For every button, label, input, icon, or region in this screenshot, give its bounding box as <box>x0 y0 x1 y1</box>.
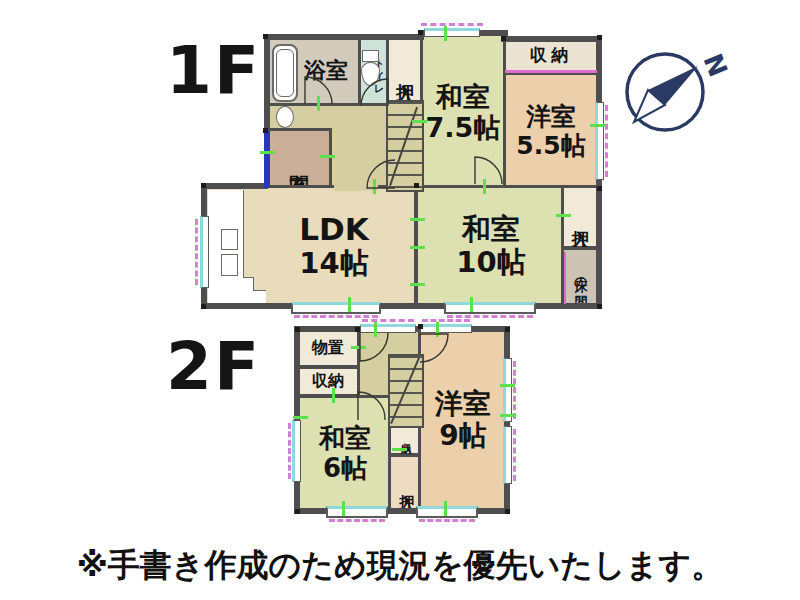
window-pink-dash <box>288 423 291 479</box>
room-label-genkan: 玄関 <box>288 159 310 161</box>
tick-mark <box>293 416 308 419</box>
room-label-closet-right: 押入 <box>570 216 590 218</box>
tick-mark <box>500 384 515 387</box>
tick-mark <box>392 448 407 451</box>
corner-dot <box>414 183 419 188</box>
room-label-youshitsu-55: 洋室 5.5帖 <box>516 103 585 161</box>
window <box>200 216 209 288</box>
room-label-storage-2f: 収納 <box>312 372 344 390</box>
room-2f-washitsu-6: 和室 6帖 <box>296 395 394 512</box>
corner-dot <box>295 509 300 514</box>
room-label-storage-top: 収納 <box>530 46 572 66</box>
tick-mark <box>444 501 447 516</box>
room-1f-storage-top: 収納 <box>503 38 599 74</box>
kitchen-counter-icon <box>221 229 238 250</box>
window <box>420 324 472 333</box>
corner-dot <box>505 327 510 332</box>
kitchen-line <box>243 190 244 278</box>
tick-mark <box>590 124 605 127</box>
tick-mark <box>410 218 425 221</box>
bay-window <box>326 506 388 518</box>
room-2f-storage: 収納 <box>296 366 360 397</box>
room-label-monooki: 物置 <box>312 339 344 357</box>
doorway-opening <box>334 184 378 191</box>
compass-needle-dark <box>648 66 698 105</box>
sink-icon <box>276 106 294 128</box>
window <box>595 102 604 180</box>
window <box>424 28 480 37</box>
kitchen-line <box>253 277 254 290</box>
tick-mark <box>410 283 425 286</box>
sliding-door-line <box>505 70 597 73</box>
window-pink-dash <box>447 315 533 318</box>
room-label-tokonoma: 床の間 <box>573 268 588 286</box>
window-pink-dash <box>513 361 516 419</box>
room-1f-youshitsu-55: 洋室 5.5帖 <box>503 72 599 192</box>
floor1-label: 1F <box>166 38 261 104</box>
tick-mark <box>556 214 571 217</box>
window-pink-dash <box>513 429 516 481</box>
corner-dot <box>263 34 268 39</box>
corner-dot <box>501 36 506 41</box>
tokonoma-line <box>564 252 566 304</box>
bay-window <box>416 506 478 518</box>
tick-mark <box>500 414 515 417</box>
room-label-closet-top: 押入 <box>395 69 416 71</box>
kitchen-line <box>253 290 266 291</box>
corner-dot <box>263 128 268 133</box>
window <box>292 420 301 482</box>
room-label-storage-small: 収納 <box>400 435 412 437</box>
room-label-washitsu-6: 和室 6帖 <box>319 424 371 484</box>
window-pink-dash <box>422 319 470 322</box>
bathtub-inner-icon <box>276 49 294 97</box>
tick-mark <box>260 151 275 154</box>
room-label-ldk: LDK 14帖 <box>299 212 369 281</box>
window <box>503 358 512 422</box>
corner-dot <box>201 183 206 188</box>
room-label-washitsu-75: 和室 7.5帖 <box>426 81 501 143</box>
kitchen-counter-icon <box>221 254 238 276</box>
tick-mark <box>483 179 486 194</box>
room-label-closet-2f: 押入 <box>397 482 414 484</box>
room-1f-washitsu-10: 和室 10帖 <box>415 185 567 307</box>
corner-dot <box>597 304 602 309</box>
compass-needle-light <box>634 90 665 122</box>
wall <box>264 34 270 132</box>
tick-mark <box>374 322 377 337</box>
room-1f-washitsu-75: 和室 7.5帖 <box>420 32 506 192</box>
floor2-label: 2F <box>166 334 261 400</box>
compass: N <box>618 42 733 142</box>
wall <box>201 303 602 309</box>
disclaimer-caption: ※手書き作成のため現況を優先いたします。 <box>0 544 800 588</box>
wall <box>501 36 602 42</box>
corner-dot <box>201 304 206 309</box>
bay-window <box>444 302 536 314</box>
tick-mark <box>444 26 447 41</box>
window-pink-dash <box>605 105 608 177</box>
wall <box>201 183 268 189</box>
toilet-tank-icon <box>362 50 379 62</box>
tick-mark <box>342 501 345 516</box>
room-1f-genkan: 玄関 <box>266 128 332 192</box>
room-label-washitsu-10: 和室 10帖 <box>456 213 525 280</box>
corner-dot <box>597 35 602 40</box>
window-pink-dash <box>195 219 198 285</box>
corner-dot <box>295 327 300 332</box>
window <box>503 426 512 484</box>
kitchen-line <box>243 277 253 278</box>
room-label-youshitsu-9: 洋室 9帖 <box>435 388 491 452</box>
room-2f-youshitsu-9: 洋室 9帖 <box>418 328 508 512</box>
bay-window <box>291 302 381 314</box>
tick-mark <box>317 96 320 111</box>
window-pink-dash <box>419 519 475 522</box>
window-pink-dash <box>329 519 385 522</box>
compass-circle <box>627 54 703 130</box>
tick-mark <box>436 322 439 337</box>
corner-dot <box>418 324 423 329</box>
tick-mark <box>320 155 335 158</box>
tick-mark <box>348 297 351 312</box>
room-1f-closet-right: 押入 <box>561 185 599 249</box>
compass-north-letter: N <box>697 50 733 81</box>
corner-dot <box>505 509 510 514</box>
room-1f-tokonoma: 床の間 <box>561 247 599 307</box>
window-pink-dash <box>294 315 378 318</box>
tick-mark <box>412 120 427 123</box>
tick-mark <box>373 179 376 194</box>
window-pink-dash <box>421 23 483 26</box>
window <box>360 324 416 333</box>
entrance-door <box>264 131 270 188</box>
floor-plan-canvas: 1F 2F 浴室 トイレ 押入 和室 7.5帖 収納 洋室 5.5帖 玄関 LD… <box>0 0 800 600</box>
tick-mark <box>351 346 366 349</box>
corner-dot <box>418 30 423 35</box>
room-1f-closet-top: 押入 <box>386 36 424 104</box>
corner-dot <box>355 327 360 332</box>
tick-mark <box>332 388 335 403</box>
tick-mark <box>470 297 473 312</box>
wall <box>264 34 424 40</box>
corner-dot <box>597 186 602 191</box>
window-pink-dash <box>362 319 414 322</box>
tick-mark <box>410 246 425 249</box>
